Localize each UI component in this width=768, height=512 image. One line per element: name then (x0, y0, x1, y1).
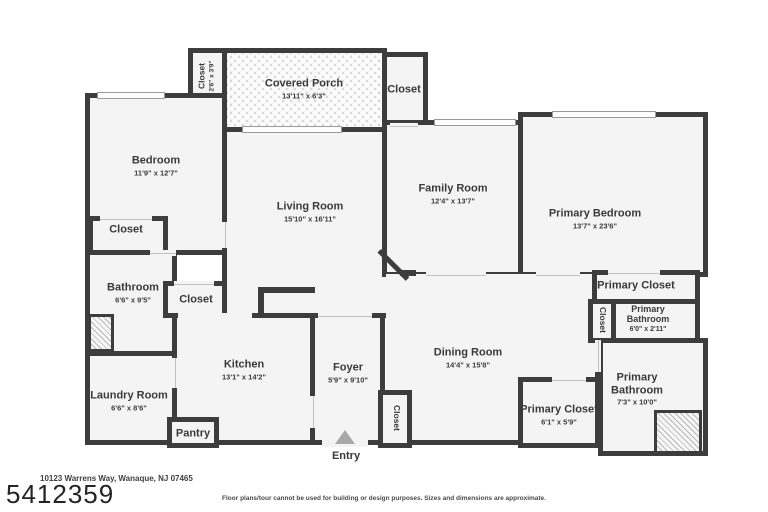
passage-opening (426, 272, 486, 278)
label-hall-closet-name: Closet (179, 294, 213, 307)
label-family-name: Family Room (418, 183, 487, 196)
door-opening (552, 377, 586, 383)
label-pantry-name: Pantry (176, 428, 210, 441)
door-opening (608, 270, 660, 276)
label-living-dims: 15'10" x 16'11" (277, 214, 344, 223)
label-pantry: Pantry (176, 428, 210, 441)
label-bathroom: Bathroom 6'6" x 9'5" (107, 282, 159, 305)
label-foyer-dims: 5'9" x 9'10" (328, 375, 368, 384)
label-foyer: Foyer 5'9" x 9'10" (328, 362, 368, 385)
label-primary-bath-large-dims: 7'3" x 10'0" (604, 398, 670, 407)
room-primary-bedroom (518, 112, 708, 277)
label-closet-top-right-name: Closet (387, 84, 421, 97)
label-living: Living Room 15'10" x 16'11" (277, 201, 344, 224)
label-bedroom-closet-name: Closet (109, 224, 143, 237)
label-primary-bath-large-name: Primary Bathroom (604, 371, 670, 396)
door-opening (100, 216, 152, 222)
door-opening (174, 281, 214, 287)
label-bathroom-dims: 6'6" x 9'5" (107, 295, 159, 304)
label-bathroom-name: Bathroom (107, 282, 159, 295)
door-opening (536, 272, 580, 278)
wall-segment (258, 287, 315, 293)
label-living-name: Living Room (277, 201, 344, 214)
label-kitchen: Kitchen 13'1" x 14'2" (222, 359, 266, 382)
label-primary-closet-lower: Primary Closet 6'1" x 5'9" (520, 404, 598, 427)
label-hall-closet: Closet (179, 294, 213, 307)
label-bedroom: Bedroom 11'9" x 12'7" (132, 155, 180, 178)
label-primary-closet-lower-name: Primary Closet (520, 404, 598, 417)
wall-segment (400, 270, 416, 276)
label-covered-porch-dims: 13'11" x 6'3" (265, 91, 343, 100)
label-covered-porch-name: Covered Porch (265, 78, 343, 91)
label-primary-bedroom-dims: 13'7" x 23'6" (549, 221, 641, 230)
label-laundry-name: Laundry Room (90, 390, 168, 403)
label-kitchen-name: Kitchen (222, 359, 266, 372)
label-dining-dims: 14'4" x 15'8" (434, 360, 502, 369)
label-primary-bedroom: Primary Bedroom 13'7" x 23'6" (549, 208, 641, 231)
label-kitchen-dims: 13'1" x 14'2" (222, 372, 266, 381)
entry-arrow-icon (335, 430, 355, 444)
label-foyer-name: Foyer (328, 362, 368, 375)
label-bedroom-name: Bedroom (132, 155, 180, 168)
label-closet-top-right: Closet (387, 84, 421, 97)
label-primary-closet-lower-dims: 6'1" x 5'9" (520, 417, 598, 426)
label-closet-top-left-dims: 2'6" x 3'9" (208, 61, 216, 92)
label-family-dims: 12'4" x 13'7" (418, 196, 487, 205)
window (97, 92, 165, 99)
disclaimer-text: Floor plans/tour cannot be used for buil… (0, 495, 768, 502)
door-opening (390, 123, 418, 129)
label-primary-hall-closet-name: Closet (597, 307, 607, 333)
label-primary-bath-small: Primary Bathroom 6'0" x 2'11" (617, 304, 679, 334)
door-opening (318, 313, 372, 319)
entry-label: Entry (332, 450, 360, 462)
label-closet-top-left: Closet 2'6" x 3'9" (198, 61, 217, 92)
door-opening (310, 396, 315, 428)
door-opening (150, 250, 176, 256)
door-opening (222, 222, 227, 248)
label-covered-porch: Covered Porch 13'11" x 6'3" (265, 78, 343, 101)
label-primary-closet-upper: Primary Closet (597, 280, 675, 293)
floor-plan: Closet 2'6" x 3'9" Covered Porch 13'11" … (0, 0, 768, 512)
shower-hatch (88, 314, 114, 352)
wall-segment (258, 287, 264, 315)
window (552, 111, 656, 118)
label-laundry-dims: 6'6" x 8'6" (90, 403, 168, 412)
passage-opening (178, 313, 252, 319)
shower-hatch (654, 410, 702, 454)
label-foyer-closet: Closet (391, 405, 401, 431)
label-dining: Dining Room 14'4" x 15'8" (434, 347, 502, 370)
label-foyer-closet-name: Closet (391, 405, 401, 431)
label-primary-bath-small-name: Primary Bathroom (617, 304, 679, 325)
label-bedroom-closet: Closet (109, 224, 143, 237)
label-closet-top-left-name: Closet (198, 61, 208, 92)
label-primary-bath-large: Primary Bathroom 7'3" x 10'0" (604, 371, 670, 406)
label-bedroom-dims: 11'9" x 12'7" (132, 168, 180, 177)
label-laundry: Laundry Room 6'6" x 8'6" (90, 390, 168, 413)
label-primary-bedroom-name: Primary Bedroom (549, 208, 641, 221)
label-primary-hall-closet: Closet (597, 307, 607, 333)
label-primary-bath-small-dims: 6'0" x 2'11" (617, 326, 679, 334)
sliding-door (242, 126, 342, 133)
wall-segment (382, 127, 387, 252)
door-opening (172, 358, 177, 388)
window (434, 119, 516, 126)
label-dining-name: Dining Room (434, 347, 502, 360)
label-family: Family Room 12'4" x 13'7" (418, 183, 487, 206)
label-primary-closet-upper-name: Primary Closet (597, 280, 675, 293)
door-opening (595, 340, 601, 372)
